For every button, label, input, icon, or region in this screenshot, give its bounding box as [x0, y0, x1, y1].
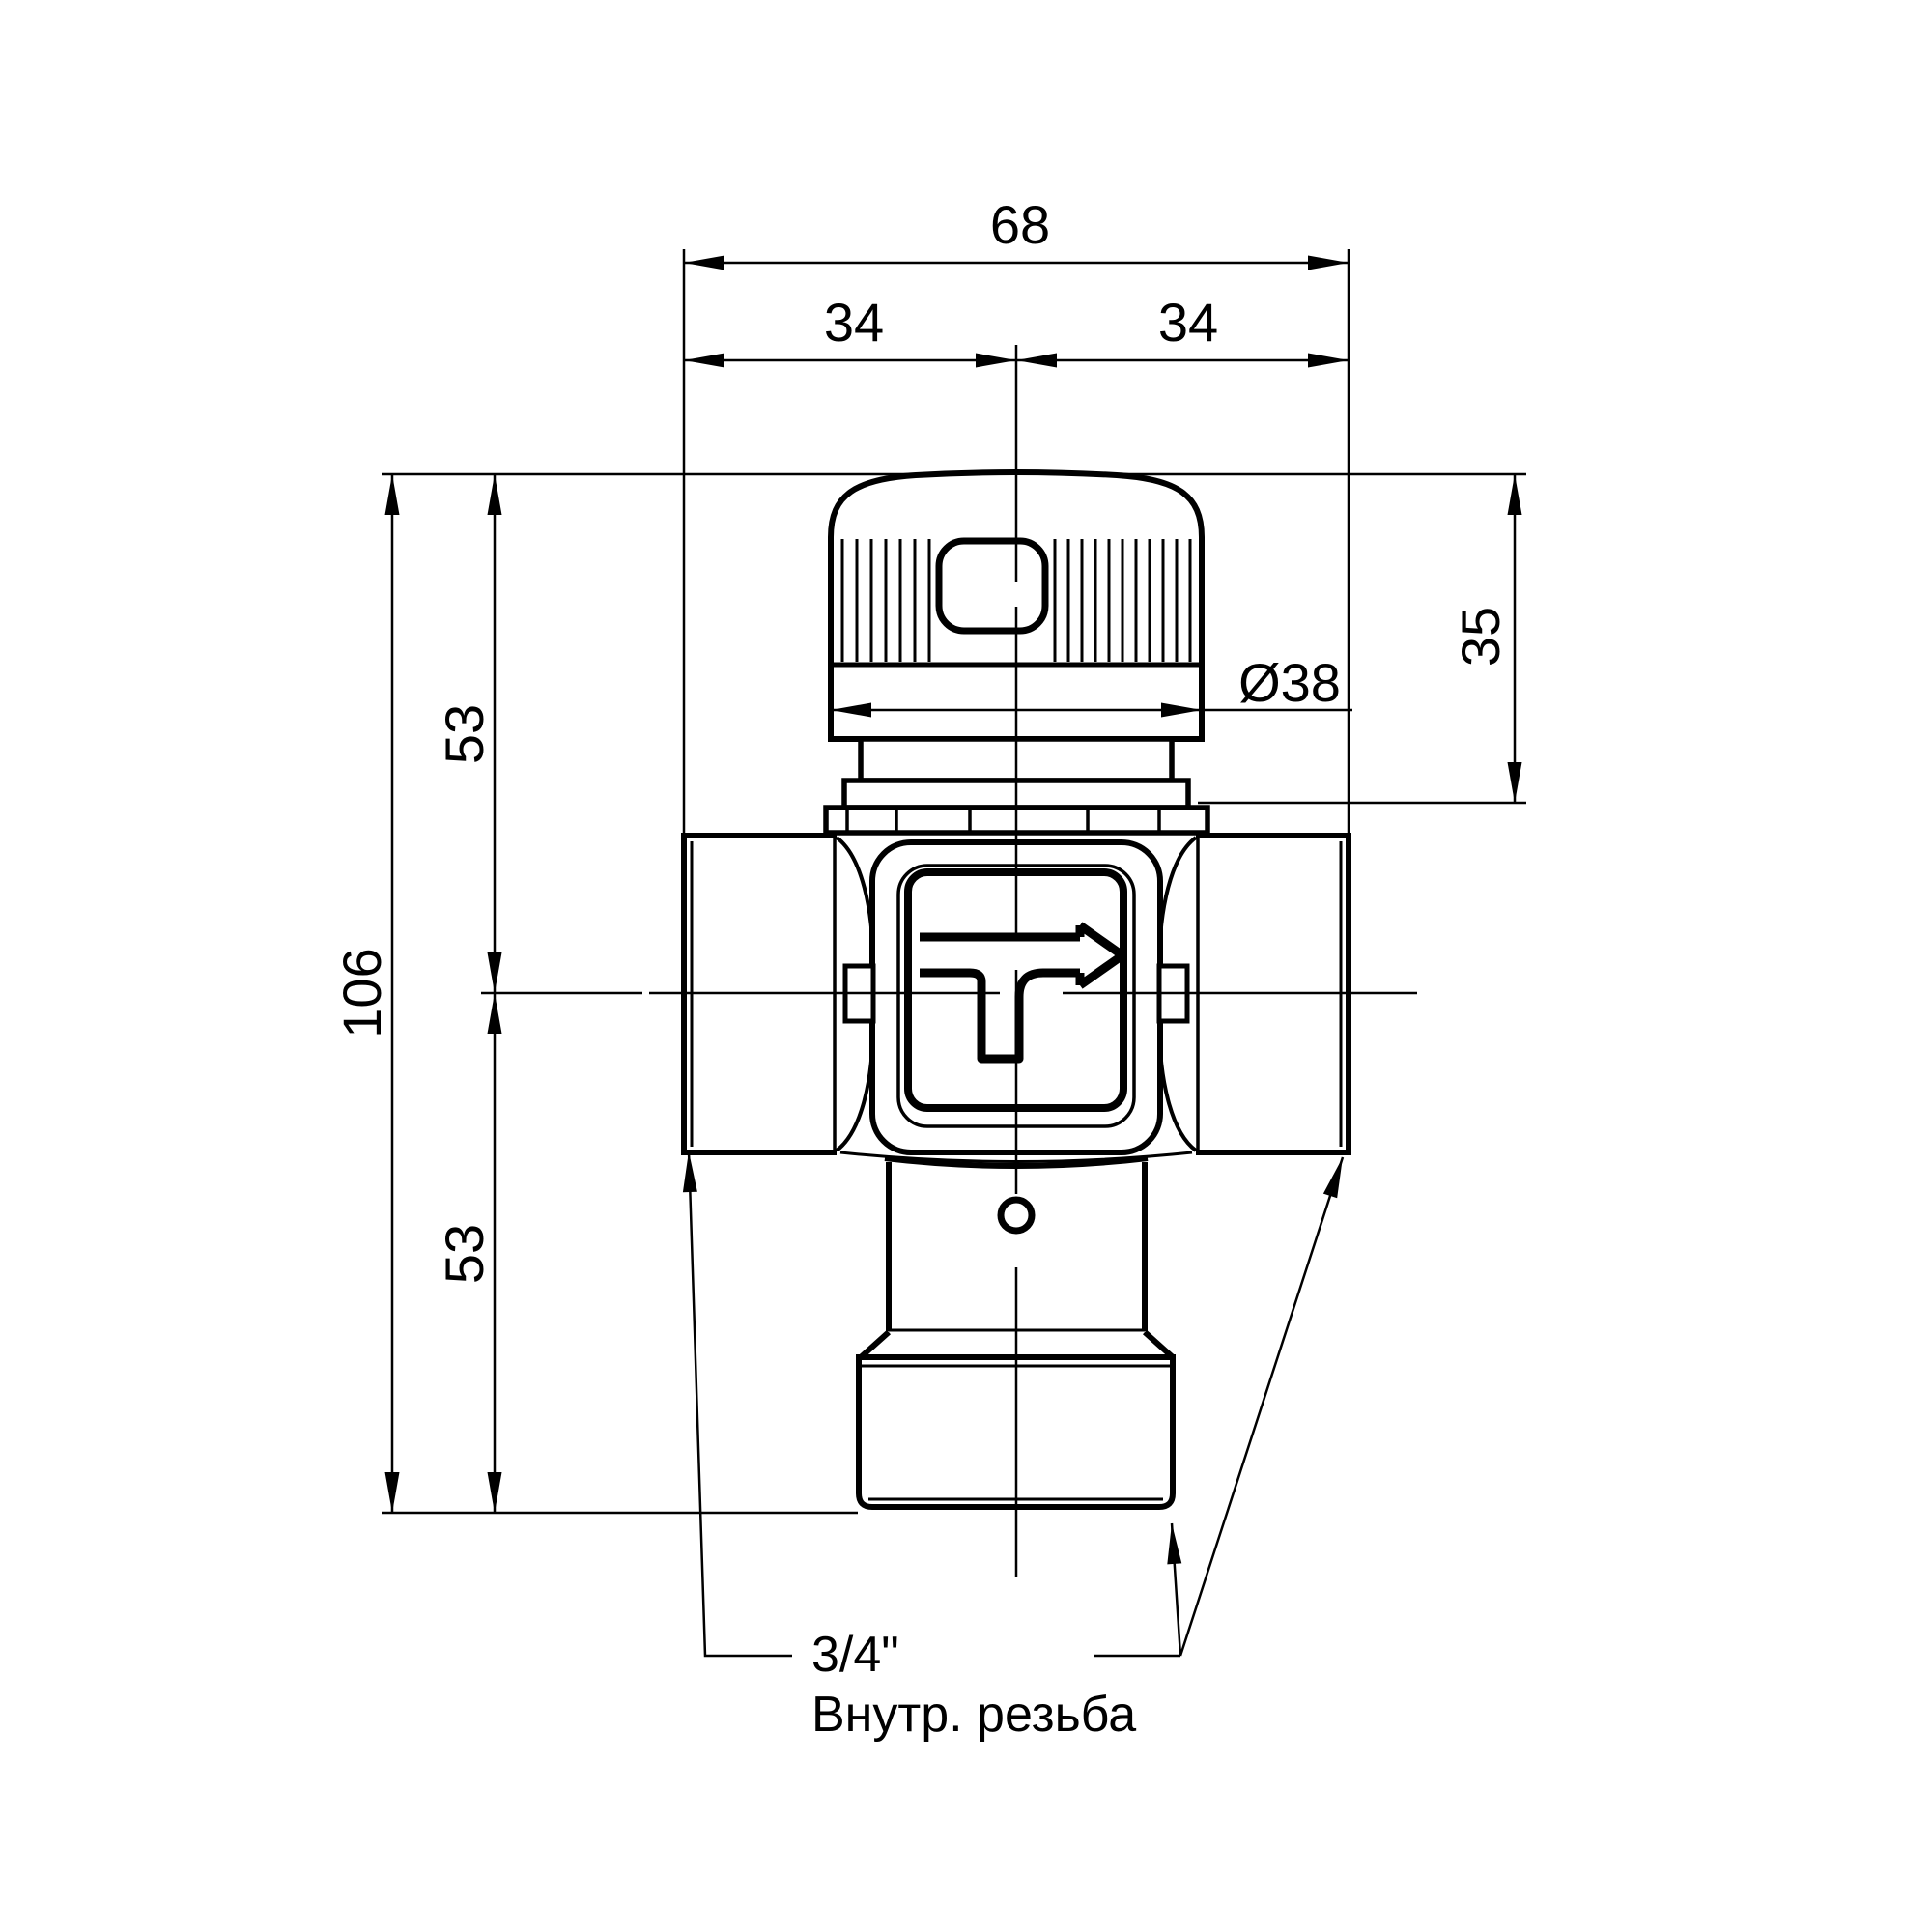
arrow [1308, 256, 1349, 270]
valve-technical-drawing: 68 34 34 106 53 53 35 Ø38 3/4" Внутр. ре… [0, 0, 1932, 1932]
leader-arrow [1323, 1155, 1350, 1199]
arrow [1308, 354, 1349, 368]
dim-label-overall-width: 68 [990, 194, 1050, 255]
arrow [385, 474, 400, 515]
dim-label-overall-height: 106 [331, 948, 392, 1037]
arrow [684, 354, 724, 368]
thread-note: 3/4" Внутр. резьба [811, 1627, 1136, 1743]
dim-label-cap-diameter: Ø38 [1238, 652, 1341, 713]
arrow [488, 1472, 502, 1513]
arrow [1508, 474, 1522, 515]
drawing-canvas: 68 34 34 106 53 53 35 Ø38 3/4" Внутр. ре… [0, 0, 1932, 1932]
thread-type-label: Внутр. резьба [811, 1687, 1136, 1743]
arrow [1016, 354, 1057, 368]
dim-label-height-lower: 53 [434, 1224, 495, 1284]
arrow [488, 952, 502, 993]
leader-arrow [1165, 1523, 1182, 1565]
arrow [488, 474, 502, 515]
thread-size-label: 3/4" [811, 1627, 899, 1683]
arrow [488, 993, 502, 1034]
dim-label-cap-height: 35 [1450, 607, 1511, 667]
arrow [976, 354, 1016, 368]
stem-hole [1001, 1200, 1032, 1231]
cap-window [939, 541, 1045, 631]
arrow [1508, 762, 1522, 803]
cap-knurl-ridges-left [842, 539, 929, 662]
dim-label-width-right: 34 [1158, 292, 1218, 353]
arrow [385, 1472, 400, 1513]
leader-arrow [682, 1151, 697, 1192]
dim-label-height-upper: 53 [434, 704, 495, 764]
arrow [684, 256, 724, 270]
leader-left-thread [689, 1151, 792, 1656]
dim-label-width-left: 34 [824, 292, 884, 353]
